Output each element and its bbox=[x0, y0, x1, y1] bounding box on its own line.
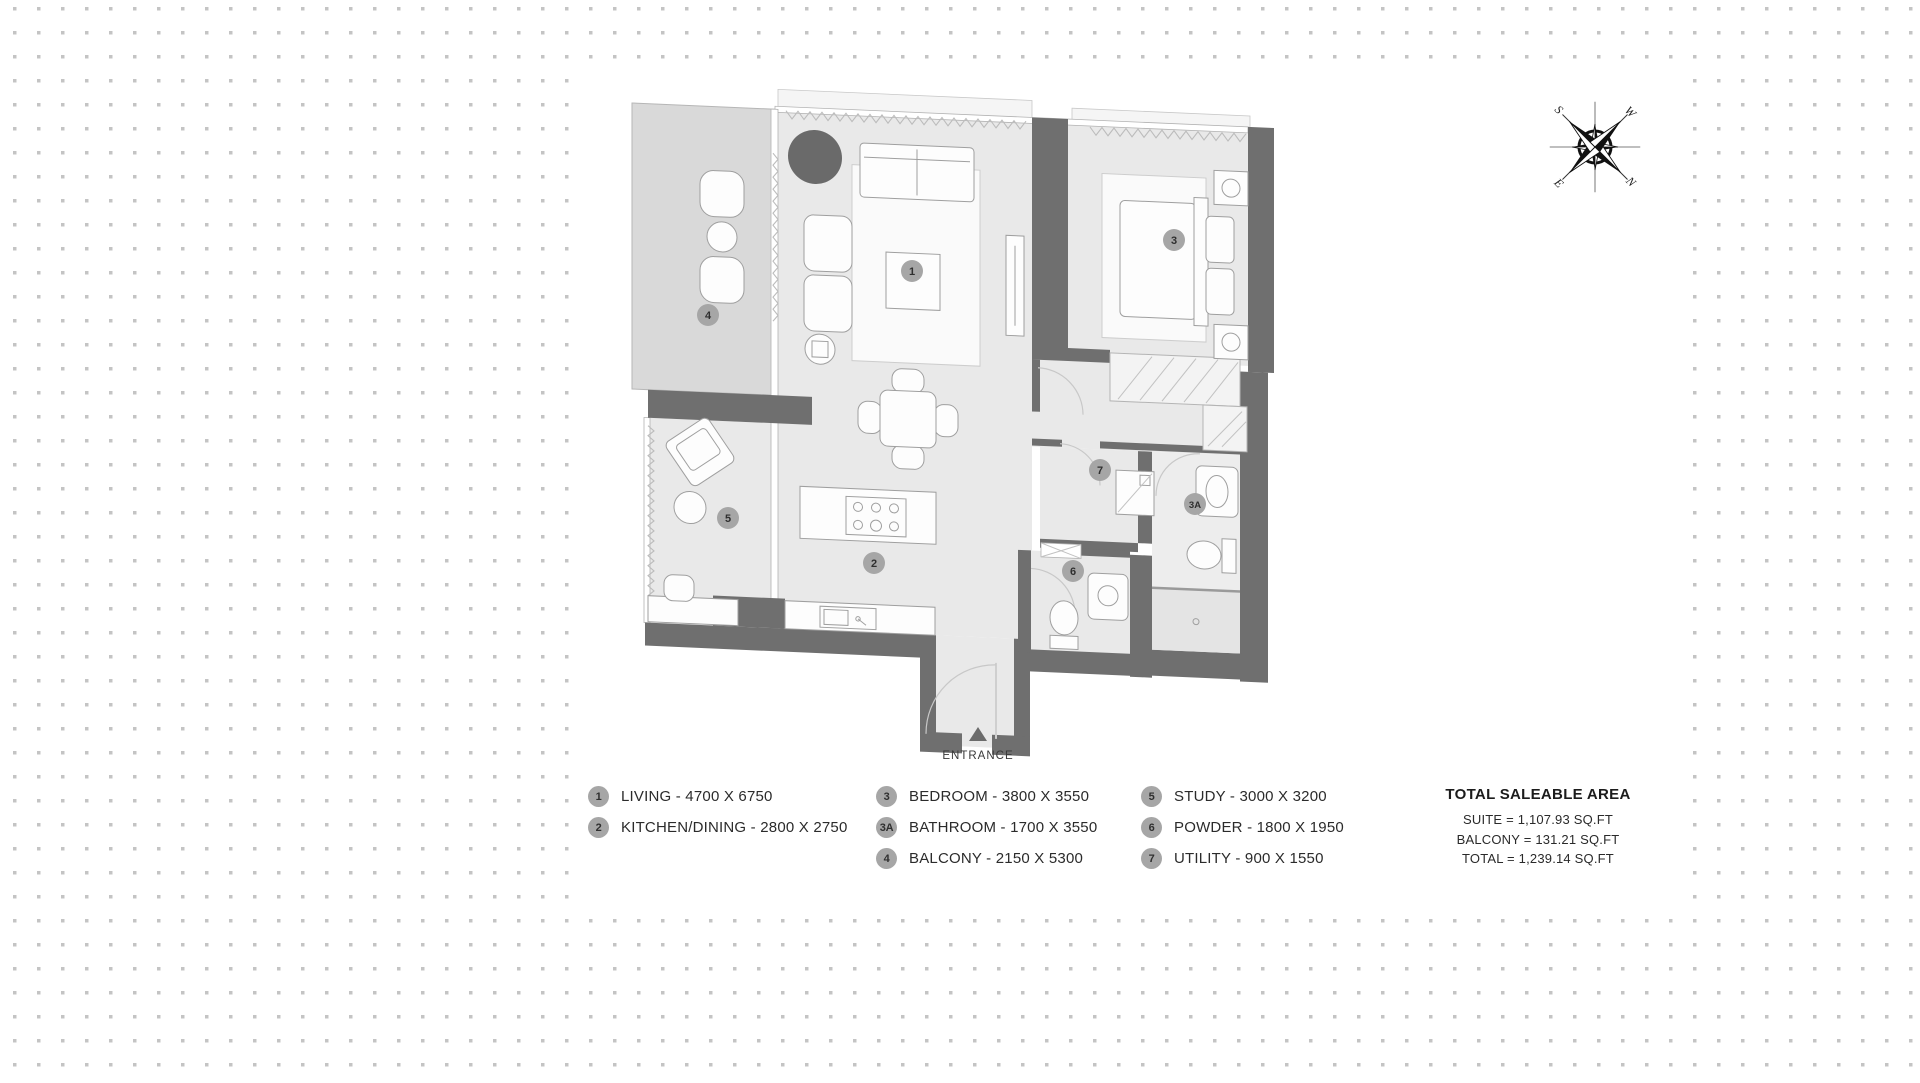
wall-entry-right bbox=[1014, 639, 1030, 752]
legend-label: BALCONY - 2150 X 5300 bbox=[909, 850, 1083, 867]
pillow bbox=[1206, 216, 1234, 263]
badge-living: 1 bbox=[901, 260, 923, 282]
utility-fixtures bbox=[1116, 470, 1154, 516]
badge-study: 5 bbox=[717, 507, 739, 529]
wall-powder-bath-divider bbox=[1130, 555, 1152, 678]
legend-label: UTILITY - 900 X 1550 bbox=[1174, 850, 1324, 867]
floorplan-canvas: 1 2 3 3A 4 5 6 7 ENTRANCE bbox=[0, 0, 1920, 1078]
totals-total: TOTAL = 1,239.14 SQ.FT bbox=[1440, 849, 1636, 869]
svg-text:7: 7 bbox=[1097, 465, 1103, 477]
svg-text:2: 2 bbox=[871, 558, 877, 570]
badge-utility: 7 bbox=[1089, 459, 1111, 481]
nightstand bbox=[1214, 170, 1248, 205]
badge-bedroom: 3 bbox=[1163, 229, 1185, 251]
study-chair bbox=[664, 574, 694, 601]
legend-badge: 7 bbox=[1141, 848, 1162, 869]
toilet-tank bbox=[1222, 539, 1236, 574]
legend-item-powder: 6 POWDER - 1800 X 1950 bbox=[1141, 817, 1344, 838]
totals-suite: SUITE = 1,107.93 SQ.FT bbox=[1440, 810, 1636, 830]
legend-badge: 3A bbox=[876, 817, 897, 838]
shower-floor bbox=[1152, 588, 1240, 654]
legend-badge: 1 bbox=[588, 786, 609, 807]
wall-living-bedroom-pillar bbox=[1032, 117, 1068, 361]
balcony-chair bbox=[700, 256, 744, 304]
total-saleable-area: TOTAL SALEABLE AREA SUITE = 1,107.93 SQ.… bbox=[1440, 786, 1636, 869]
legend-item-kitchen-dining: 2 KITCHEN/DINING - 2800 X 2750 bbox=[588, 817, 848, 838]
toilet bbox=[1050, 600, 1078, 635]
study-window-wall bbox=[644, 418, 650, 623]
armchair bbox=[804, 275, 852, 333]
armchair bbox=[804, 215, 852, 273]
toilet-tank bbox=[1050, 635, 1078, 649]
balcony-furniture bbox=[700, 170, 744, 304]
totals-title: TOTAL SALEABLE AREA bbox=[1440, 786, 1636, 803]
legend-item-bathroom: 3A BATHROOM - 1700 X 3550 bbox=[876, 817, 1097, 838]
study-desk bbox=[648, 596, 738, 626]
pillow bbox=[1206, 268, 1234, 315]
legend-badge: 5 bbox=[1141, 786, 1162, 807]
wall-closet-stub bbox=[1068, 348, 1110, 363]
badge-kitchen-dining: 2 bbox=[863, 552, 885, 574]
dining-chair bbox=[858, 401, 882, 434]
legend-label: LIVING - 4700 X 6750 bbox=[621, 788, 773, 805]
legend-item-utility: 7 UTILITY - 900 X 1550 bbox=[1141, 848, 1324, 869]
legend-label: BATHROOM - 1700 X 3550 bbox=[909, 819, 1097, 836]
svg-text:6: 6 bbox=[1070, 566, 1076, 578]
wall-right-upper bbox=[1248, 127, 1274, 373]
legend-label: BEDROOM - 3800 X 3550 bbox=[909, 788, 1089, 805]
totals-balcony: BALCONY = 131.21 SQ.FT bbox=[1440, 830, 1636, 850]
svg-text:1: 1 bbox=[909, 266, 915, 278]
legend-item-study: 5 STUDY - 3000 X 3200 bbox=[1141, 786, 1327, 807]
svg-text:5: 5 bbox=[725, 513, 731, 525]
badge-powder: 6 bbox=[1062, 560, 1084, 582]
bedroom-furniture bbox=[1102, 166, 1248, 360]
wall-entry-left bbox=[920, 635, 936, 748]
legend-item-balcony: 4 BALCONY - 2150 X 5300 bbox=[876, 848, 1083, 869]
balcony-floor bbox=[632, 103, 775, 395]
entry-corridor-floor bbox=[936, 635, 1014, 748]
dining-chair bbox=[934, 404, 958, 437]
legend-badge: 4 bbox=[876, 848, 897, 869]
legend-label: STUDY - 3000 X 3200 bbox=[1174, 788, 1327, 805]
nightstand bbox=[1214, 324, 1248, 359]
powder-sink bbox=[1088, 573, 1128, 621]
floorplan-page: 1 2 3 3A 4 5 6 7 ENTRANCE bbox=[0, 0, 1920, 1078]
legend-item-living: 1 LIVING - 4700 X 6750 bbox=[588, 786, 773, 807]
dining-table bbox=[880, 390, 936, 448]
dining-chair bbox=[892, 368, 924, 393]
wall-hall-south-left bbox=[1032, 438, 1062, 446]
legend-label: POWDER - 1800 X 1950 bbox=[1174, 819, 1344, 836]
totals-lines: SUITE = 1,107.93 SQ.FT BALCONY = 131.21 … bbox=[1440, 810, 1636, 869]
svg-text:4: 4 bbox=[705, 310, 712, 322]
wall-powder-left bbox=[1018, 550, 1031, 653]
legend-badge: 3 bbox=[876, 786, 897, 807]
svg-text:3A: 3A bbox=[1189, 500, 1201, 511]
entrance-label: ENTRANCE bbox=[942, 750, 1013, 762]
badge-balcony: 4 bbox=[697, 304, 719, 326]
bed bbox=[1120, 200, 1196, 319]
legend-item-bedroom: 3 BEDROOM - 3800 X 3550 bbox=[876, 786, 1089, 807]
wall-powder-bottom bbox=[1030, 649, 1132, 675]
svg-text:3: 3 bbox=[1171, 235, 1177, 247]
badge-bathroom: 3A bbox=[1184, 493, 1206, 515]
dining-chair bbox=[892, 444, 924, 469]
legend-badge: 6 bbox=[1141, 817, 1162, 838]
balcony-chair bbox=[700, 170, 744, 218]
legend-label: KITCHEN/DINING - 2800 X 2750 bbox=[621, 819, 848, 836]
legend-badge: 2 bbox=[588, 817, 609, 838]
